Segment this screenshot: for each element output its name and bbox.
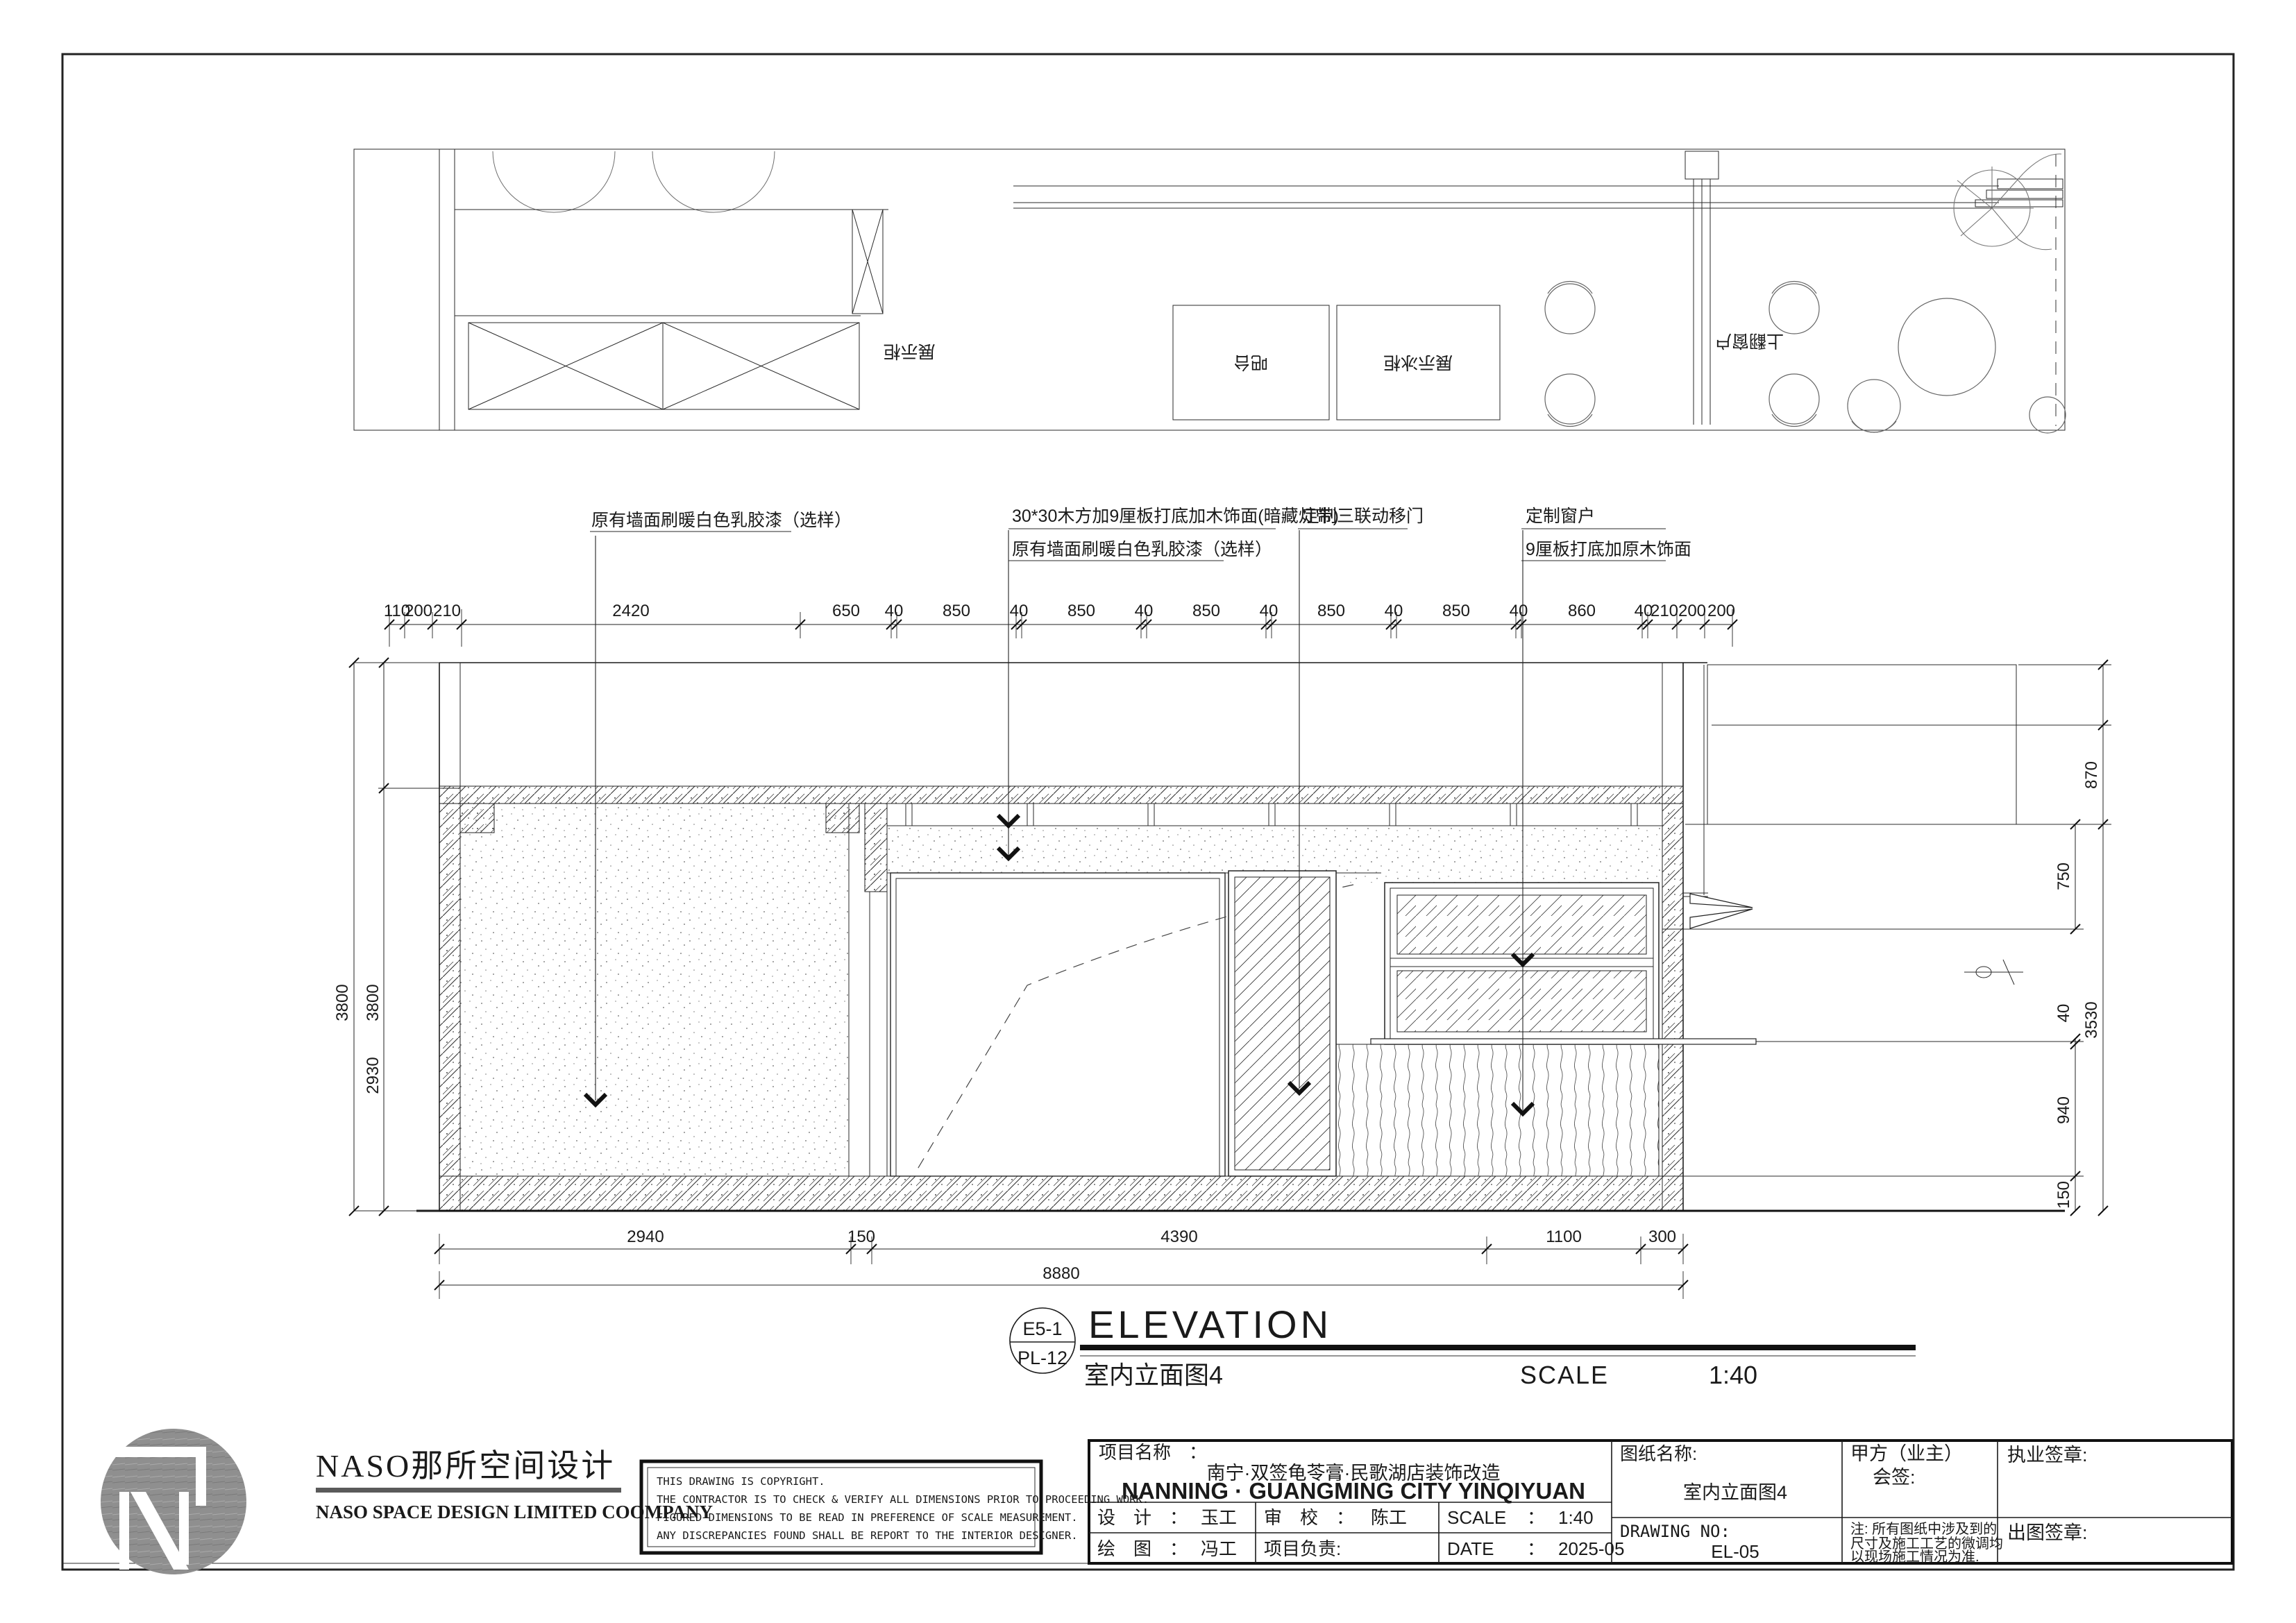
dim-value: 210 — [433, 602, 461, 620]
painted-bulkhead — [887, 826, 1336, 873]
title-name-en: ELEVATION — [1088, 1302, 1332, 1346]
plan-label-cabinet: 展示柜 — [883, 341, 935, 361]
copyright-line: THE CONTRACTOR IS TO CHECK & VERIFY ALL … — [657, 1493, 1149, 1506]
dim-value: 3800 — [364, 984, 382, 1021]
dim-value: 3800 — [333, 984, 352, 1021]
dim-value: 2420 — [612, 602, 649, 620]
tb-pm-label: 项目负责: — [1264, 1538, 1341, 1559]
dim-value: 850 — [1067, 602, 1095, 620]
dim-value: 1100 — [1546, 1227, 1582, 1246]
copyright-line: THIS DRAWING IS COPYRIGHT. — [657, 1475, 825, 1488]
drawing-sheet: 展示柜 吧台 展示冰柜 上翻窗户 — [0, 0, 2296, 1623]
tb-scale-sep: ： — [1527, 1507, 1545, 1528]
dim-value: 850 — [1442, 602, 1470, 620]
plan-tables — [1848, 298, 2066, 433]
annotation-batten: 30*30木方加9厘板打底加木饰面(暗藏灯带) — [1012, 507, 1339, 526]
tb-design-value: 玉工 — [1201, 1507, 1237, 1528]
dim-value: 2930 — [364, 1057, 382, 1094]
annotation-wood-face: 9厘板打底加原木饰面 — [1526, 540, 1691, 559]
title-bubble-bottom: PL-12 — [1018, 1348, 1067, 1368]
title-bubble-top: E5-1 — [1022, 1318, 1062, 1339]
step-beam-b — [865, 804, 887, 892]
tb-note-line: 注: 所有图纸中涉及到的 — [1850, 1521, 1997, 1537]
tb-sheet-label: 图纸名称: — [1620, 1443, 1697, 1464]
annotation-wall-paint-2: 原有墙面刷暖白色乳胶漆（选样） — [1012, 540, 1272, 559]
tb-dwgno-label: DRAWING NO: — [1620, 1522, 1730, 1541]
copyright-box: THIS DRAWING IS COPYRIGHT. THE CONTRACTO… — [641, 1461, 1149, 1553]
tb-project-label: 项目名称 ： — [1099, 1442, 1207, 1463]
opening-indicator — [1690, 894, 1753, 928]
right-wall-section — [1662, 804, 1683, 1176]
painted-wall-right — [1336, 826, 1662, 883]
logo-cn: NASO那所空间设计 — [316, 1448, 615, 1484]
tb-dwgno-value: EL-05 — [1711, 1541, 1759, 1562]
tb-sign-label: 执业签章: — [2007, 1445, 2088, 1465]
tb-date-value: 2025-05 — [1558, 1538, 1624, 1559]
door-swing-arc — [652, 151, 775, 212]
dim-value: 40 — [1010, 602, 1029, 620]
dim-value: 650 — [832, 602, 860, 620]
title-scale-label: SCALE — [1520, 1361, 1609, 1389]
dim-value: 40 — [1510, 602, 1528, 620]
dim-value: 4390 — [1160, 1227, 1197, 1246]
elevation-view — [416, 663, 2084, 1211]
tb-scale-label: SCALE — [1447, 1507, 1506, 1528]
dim-value: 200 — [1707, 602, 1735, 620]
plan-sliding-window — [1685, 151, 1719, 425]
wood-panel — [1336, 1044, 1659, 1176]
annotation-sliding-door: 定制三联动移门 — [1302, 507, 1424, 526]
title-scale-value: 1:40 — [1709, 1361, 1757, 1389]
window-sill — [1371, 1039, 1756, 1044]
level-marker — [1964, 960, 2023, 985]
ceiling-slab — [439, 786, 1683, 804]
plan-chairs — [1545, 281, 1819, 426]
tb-check-label: 审 校 ： — [1264, 1507, 1354, 1528]
dim-value: 850 — [1192, 602, 1220, 620]
copyright-line: FIGURED DIMENSIONS TO BE READ IN PREFERE… — [657, 1511, 1078, 1524]
beyond-wall-outline — [1707, 665, 2016, 824]
dim-value-total: 8880 — [1043, 1264, 1079, 1283]
dim-value: 40 — [1385, 602, 1403, 620]
dim-value: 850 — [943, 602, 970, 620]
tb-project-en: NANNING · GUANGMING CITY YINQIYUAN — [1122, 1478, 1585, 1504]
sliding-door-panel — [1229, 871, 1336, 1176]
title-name-cn: 室内立面图4 — [1084, 1361, 1223, 1389]
logo-en: NASO SPACE DESIGN LIMITED COOMPANY — [316, 1502, 713, 1522]
dim-value: 300 — [1648, 1227, 1676, 1246]
dim-value: 210 — [1651, 602, 1678, 620]
tb-date-label: DATE — [1447, 1538, 1494, 1559]
dim-value: 2940 — [627, 1227, 664, 1246]
annotation-window: 定制窗户 — [1526, 507, 1595, 526]
plan-casework — [469, 210, 883, 409]
cad-canvas: 展示柜 吧台 展示冰柜 上翻窗户 — [0, 0, 2296, 1623]
annotations: 原有墙面刷暖白色乳胶漆（选样） 30*30木方加9厘板打底加木饰面(暗藏灯带) … — [590, 507, 1691, 561]
dim-value: 850 — [1317, 602, 1345, 620]
plan-label-window: 上翻窗户 — [1714, 331, 1784, 350]
tb-design-label: 设 计 ： — [1097, 1507, 1188, 1528]
tb-party-sub: 会签: — [1873, 1467, 1916, 1488]
dim-value: 940 — [2054, 1096, 2073, 1124]
door-swing-arc — [493, 151, 615, 212]
tb-stamp-label: 出图签章: — [2007, 1522, 2088, 1543]
corner-beam — [460, 804, 494, 833]
dim-right: 870 3530 750 40 940 150 — [1662, 660, 2111, 1216]
dim-value: 750 — [2054, 863, 2073, 890]
dim-value: 200 — [405, 602, 432, 620]
dim-value: 3530 — [2082, 1001, 2101, 1038]
tb-scale-value: 1:40 — [1558, 1507, 1594, 1528]
drawing-title: E5-1 PL-12 ELEVATION 室内立面图4 SCALE 1:40 — [1010, 1302, 1916, 1389]
dim-top: 110 200 210 2420 650 40 850 40 850 40 85… — [384, 602, 1737, 647]
dim-value: 40 — [1135, 602, 1154, 620]
dim-value: 40 — [1260, 602, 1278, 620]
dim-bottom: 2940 150 4390 1100 300 8880 — [434, 1227, 1688, 1299]
plan-label-bar: 吧台 — [1233, 352, 1268, 372]
tb-check-value: 陈工 — [1371, 1507, 1407, 1528]
painted-wall-left — [460, 804, 849, 1176]
dim-value: 200 — [1678, 602, 1706, 620]
tb-date-sep: ： — [1527, 1538, 1545, 1559]
tb-draw-value: 冯工 — [1201, 1538, 1237, 1559]
plan-label-freezer: 展示冰柜 — [1383, 352, 1453, 372]
tb-party-label: 甲方（业主） — [1850, 1443, 1963, 1464]
logo-block: NASO那所空间设计 NASO SPACE DESIGN LIMITED COO… — [97, 1429, 713, 1574]
dim-value: 870 — [2082, 761, 2101, 789]
dim-value: 860 — [1568, 602, 1596, 620]
annotation-wall-paint: 原有墙面刷暖白色乳胶漆（选样） — [591, 511, 852, 530]
tb-sheet-value: 室内立面图4 — [1683, 1482, 1787, 1503]
tb-draw-label: 绘 图 ： — [1097, 1538, 1188, 1559]
dim-value: 150 — [847, 1227, 875, 1246]
dim-value: 150 — [2054, 1181, 2073, 1209]
dim-value: 40 — [2054, 1004, 2073, 1023]
left-wall-section — [439, 804, 460, 1176]
floor-slab — [439, 1176, 1683, 1211]
step-beam-a — [826, 804, 859, 833]
tb-note-line: 以现场施工情况为准. — [1850, 1549, 1980, 1565]
plan-plant — [1954, 154, 2061, 250]
plan-view: 展示柜 吧台 展示冰柜 上翻窗户 — [354, 149, 2066, 433]
copyright-line: ANY DISCREPANCIES FOUND SHALL BE REPORT … — [657, 1529, 1078, 1542]
title-block: 项目名称 ： 南宁·双签龟苓膏·民歌湖店装饰改造 NANNING · GUANG… — [1089, 1441, 2232, 1565]
dim-value: 40 — [885, 602, 904, 620]
